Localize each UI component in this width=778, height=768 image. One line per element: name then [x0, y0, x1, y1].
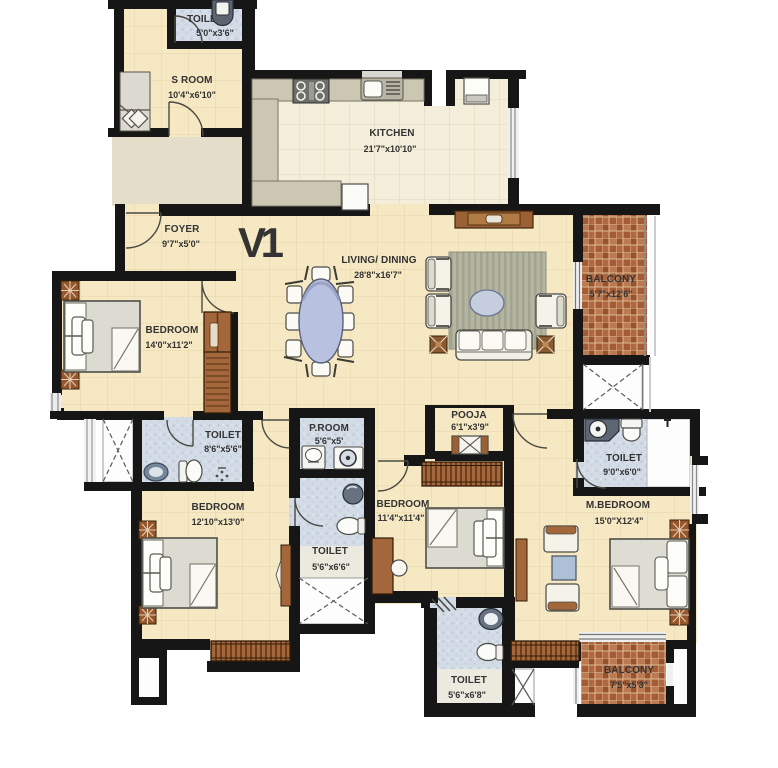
- svg-text:POOJA: POOJA: [451, 410, 487, 421]
- svg-text:V1: V1: [238, 219, 284, 266]
- svg-text:6'1"x3'9": 6'1"x3'9": [451, 422, 489, 432]
- svg-text:M.BEDROOM: M.BEDROOM: [586, 500, 650, 511]
- svg-text:S ROOM: S ROOM: [171, 75, 212, 86]
- svg-text:TOILET: TOILET: [312, 546, 348, 557]
- svg-text:9'7"x5'0": 9'7"x5'0": [162, 239, 200, 249]
- svg-text:28'8"x16'7": 28'8"x16'7": [354, 270, 402, 280]
- svg-text:7'5"x5'3": 7'5"x5'3": [610, 680, 648, 690]
- svg-text:BEDROOM: BEDROOM: [146, 325, 199, 336]
- svg-text:14'0"x11'2": 14'0"x11'2": [145, 340, 192, 350]
- svg-text:P.ROOM: P.ROOM: [309, 423, 349, 434]
- svg-text:LIVING/ DINING: LIVING/ DINING: [341, 255, 416, 266]
- svg-text:BEDROOM: BEDROOM: [192, 502, 245, 513]
- svg-text:FOYER: FOYER: [165, 224, 201, 235]
- svg-text:12'10"x13'0": 12'10"x13'0": [192, 517, 245, 527]
- svg-text:TOILET: TOILET: [606, 453, 642, 464]
- svg-text:TOILET: TOILET: [205, 430, 241, 441]
- svg-text:5'0"x3'6": 5'0"x3'6": [196, 28, 234, 38]
- svg-text:5'6"x6'6": 5'6"x6'6": [312, 562, 350, 572]
- svg-text:BALCONY: BALCONY: [586, 274, 636, 285]
- svg-text:10'4"x6'10": 10'4"x6'10": [168, 90, 216, 100]
- svg-text:KITCHEN: KITCHEN: [369, 128, 414, 139]
- svg-text:11'4"x11'4": 11'4"x11'4": [378, 513, 425, 523]
- svg-text:5'6"x5': 5'6"x5': [315, 436, 344, 446]
- svg-text:8'6"x5'6": 8'6"x5'6": [204, 444, 242, 454]
- svg-text:TOILET: TOILET: [451, 675, 487, 686]
- svg-text:21'7"x10'10": 21'7"x10'10": [364, 144, 417, 154]
- svg-text:9'0"x6'0": 9'0"x6'0": [603, 467, 641, 477]
- svg-text:15'0"X12'4": 15'0"X12'4": [595, 516, 644, 526]
- svg-text:BALCONY: BALCONY: [604, 665, 654, 676]
- svg-text:5'7"x12'6": 5'7"x12'6": [590, 289, 633, 299]
- svg-text:5'6"x6'8": 5'6"x6'8": [448, 690, 486, 700]
- svg-text:BEDROOM: BEDROOM: [377, 499, 430, 510]
